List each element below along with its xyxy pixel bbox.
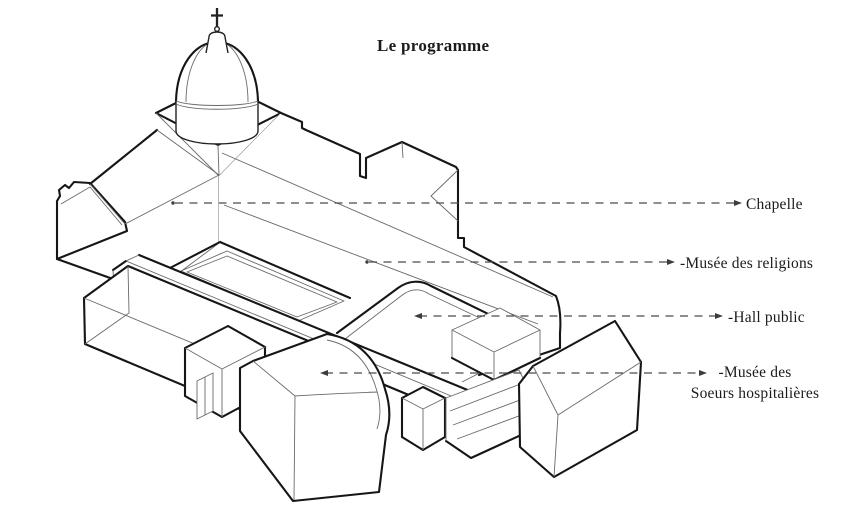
curved-roof-building-group (240, 334, 389, 501)
dome-group (176, 8, 258, 144)
diagram-page: Le programme Chapelle -Musée des religio… (0, 0, 860, 520)
annotation-chapelle: Chapelle (746, 194, 803, 215)
annotation-hall-public: -Hall public (728, 307, 805, 328)
chimney-cube (402, 387, 445, 450)
annotation-musee-soeurs: -Musée des Soeurs hospitalières (682, 362, 828, 404)
annotation-musee-soeurs-line2: Soeurs hospitalières (682, 383, 828, 404)
annotation-musee-religions: -Musée des religions (680, 253, 813, 274)
cross-finial-icon (211, 8, 223, 27)
page-title: Le programme (377, 36, 489, 56)
annotation-musee-soeurs-line1: -Musée des (682, 362, 828, 383)
